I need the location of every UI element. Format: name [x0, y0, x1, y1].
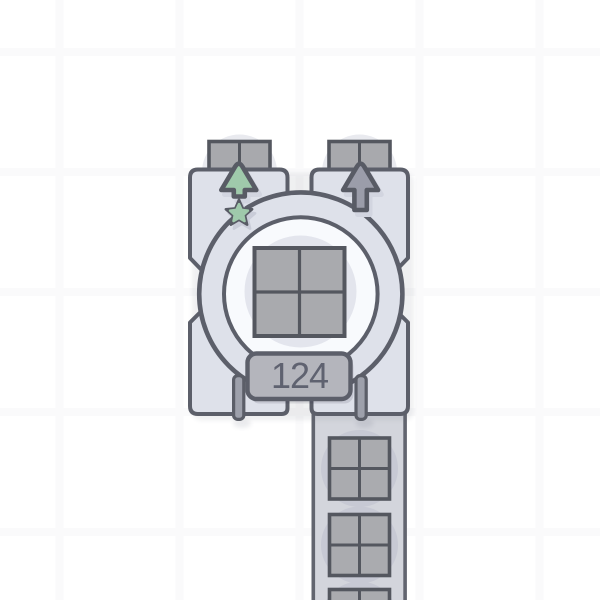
svg-text:124: 124 — [271, 355, 328, 396]
